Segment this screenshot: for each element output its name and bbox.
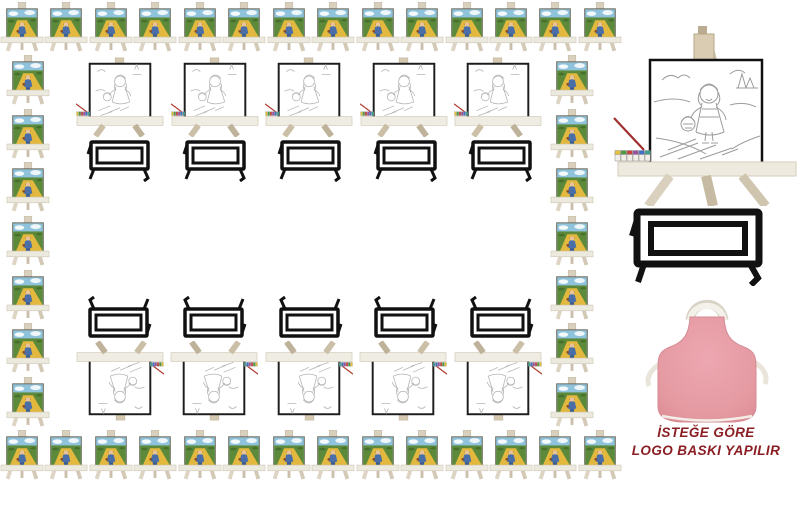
painted-canvas-icon xyxy=(585,9,616,39)
painted-canvas-icon xyxy=(13,276,44,306)
mini-canvas-easel xyxy=(222,430,266,480)
product-collage: İSTEĞE GÖRE LOGO BASKI YAPILIR xyxy=(0,0,800,509)
sketch-canvas-easel xyxy=(171,341,259,421)
easel-tray xyxy=(551,358,593,364)
mini-canvas-easel xyxy=(89,430,133,480)
table-outline-icon xyxy=(180,138,250,182)
sketch-canvas-easel xyxy=(265,341,353,421)
painted-canvas-icon xyxy=(7,437,38,467)
painted-canvas-icon xyxy=(13,169,44,199)
coloring-canvas-icon xyxy=(279,64,340,121)
easel-tray xyxy=(312,465,354,471)
mini-canvas-easel xyxy=(6,377,50,427)
paint-pots-icon xyxy=(528,362,542,374)
paint-brush-icon xyxy=(76,104,88,113)
coloring-canvas-icon xyxy=(468,358,529,415)
easel-left-leg xyxy=(379,125,387,136)
easel-tray xyxy=(455,117,541,126)
sketch-canvas-easel xyxy=(171,57,259,137)
paint-brush-icon xyxy=(171,104,183,113)
table-outline-icon xyxy=(466,138,536,182)
easel-left-leg xyxy=(137,342,145,353)
border-col-right xyxy=(550,55,598,427)
easel-tray xyxy=(179,37,221,43)
paint-pots-icon xyxy=(454,104,468,116)
easel-left-leg xyxy=(474,125,482,136)
easel-tray xyxy=(551,90,593,96)
painted-canvas-icon xyxy=(96,437,127,467)
table-outline-icon xyxy=(275,138,345,182)
easel-right-leg xyxy=(229,125,237,136)
easel-tray xyxy=(618,162,796,176)
coloring-canvas-icon xyxy=(90,64,151,121)
painted-canvas-icon xyxy=(540,437,571,467)
table-outline-icon xyxy=(466,296,536,340)
easel-tray xyxy=(534,37,576,43)
mini-canvas-easel xyxy=(445,2,489,52)
easel-tray xyxy=(7,251,49,257)
painted-canvas-icon xyxy=(13,384,44,414)
easel-right-leg xyxy=(135,125,143,136)
mini-canvas-easel xyxy=(533,430,577,480)
mini-canvas-easel xyxy=(222,2,266,52)
caption-line1: İSTEĞE GÖRE xyxy=(606,424,800,442)
easel-tray xyxy=(268,465,310,471)
painted-canvas-icon xyxy=(362,437,393,467)
painted-canvas-icon xyxy=(13,115,44,145)
mini-canvas-easel xyxy=(267,2,311,52)
painted-canvas-icon xyxy=(318,9,349,39)
painted-canvas-icon xyxy=(229,9,260,39)
easel-tray xyxy=(360,117,446,126)
sketch-canvas-easel xyxy=(360,341,448,421)
coloring-canvas-icon xyxy=(184,358,245,415)
mini-canvas-easel xyxy=(178,430,222,480)
border-col-left xyxy=(6,55,54,427)
sketch-canvas-easel xyxy=(454,341,542,421)
paint-brush-icon xyxy=(265,104,277,113)
painted-canvas-icon xyxy=(362,9,393,39)
easel-tray xyxy=(551,412,593,418)
table-outline-icon xyxy=(371,138,441,182)
border-row-bottom xyxy=(0,430,622,482)
mini-canvas-easel xyxy=(550,55,594,105)
mini-canvas-easel xyxy=(133,430,177,480)
painted-canvas-icon xyxy=(229,437,260,467)
painted-canvas-icon xyxy=(51,437,82,467)
painted-canvas-icon xyxy=(557,384,588,414)
mini-canvas-easel xyxy=(6,162,50,212)
painted-canvas-icon xyxy=(557,62,588,92)
easel-tray xyxy=(77,353,163,362)
apron xyxy=(642,290,772,428)
easel-tray xyxy=(266,117,352,126)
easel-right-leg xyxy=(513,125,521,136)
caption: İSTEĞE GÖRE LOGO BASKI YAPILIR xyxy=(606,424,800,459)
mini-canvas-easel xyxy=(400,430,444,480)
mini-canvas-easel xyxy=(550,270,594,320)
easel-tray xyxy=(551,197,593,203)
painted-canvas-icon xyxy=(140,437,171,467)
paint-brush-icon xyxy=(247,365,259,374)
easel-tray xyxy=(401,37,443,43)
easel-tray xyxy=(551,305,593,311)
mini-canvas-easel xyxy=(6,216,50,266)
paint-brush-icon xyxy=(360,104,372,113)
large-easel-icon xyxy=(612,8,798,206)
painted-canvas-icon xyxy=(273,9,304,39)
easel-tray xyxy=(534,465,576,471)
mini-canvas-easel xyxy=(6,323,50,373)
mini-canvas-easel xyxy=(550,162,594,212)
painted-canvas-icon xyxy=(451,9,482,39)
mini-canvas-easel xyxy=(489,2,533,52)
coloring-canvas-icon xyxy=(373,64,434,121)
mini-canvas-easel xyxy=(0,430,44,480)
easel-left-leg xyxy=(648,176,670,206)
easel-left-leg xyxy=(96,125,104,136)
paint-pots-icon xyxy=(150,362,164,374)
easel-tray xyxy=(7,412,49,418)
painted-canvas-icon xyxy=(496,9,527,39)
easel-tray xyxy=(7,90,49,96)
easel-right-leg xyxy=(324,125,332,136)
caption-line2: LOGO BASKI YAPILIR xyxy=(606,442,800,460)
easel-tray xyxy=(7,358,49,364)
mini-canvas-easel xyxy=(89,2,133,52)
easel-back-leg xyxy=(706,176,713,206)
easel-right-leg xyxy=(418,125,426,136)
paint-brush-icon xyxy=(341,365,353,374)
painted-canvas-icon xyxy=(557,223,588,253)
easel-tray xyxy=(360,353,446,362)
mini-canvas-easel xyxy=(550,216,594,266)
easel-right-leg xyxy=(98,342,106,353)
easel-tray xyxy=(445,37,487,43)
mini-canvas-easel xyxy=(133,2,177,52)
mini-canvas-easel xyxy=(178,2,222,52)
mini-canvas-easel xyxy=(445,430,489,480)
featured-table-icon xyxy=(628,206,768,286)
paint-pots-icon xyxy=(434,362,448,374)
sketch-canvas-easel xyxy=(265,57,353,137)
easel-tray xyxy=(90,465,132,471)
paint-brush-icon xyxy=(530,365,542,374)
sketch-canvas-easel xyxy=(76,57,164,137)
painted-canvas-icon xyxy=(51,9,82,39)
painted-canvas-icon xyxy=(185,9,216,39)
paint-pots-icon xyxy=(76,104,90,116)
easel-right-leg xyxy=(742,176,766,206)
mini-canvas-easel xyxy=(311,2,355,52)
paint-brush-icon xyxy=(454,104,466,113)
easel-left-leg xyxy=(515,342,523,353)
easel-left-leg xyxy=(420,342,428,353)
painted-canvas-icon xyxy=(540,9,571,39)
paint-pots-icon xyxy=(171,104,185,116)
mini-canvas-easel xyxy=(550,323,594,373)
easel-right-leg xyxy=(192,342,200,353)
paint-brush-icon xyxy=(436,365,448,374)
easel-tray xyxy=(579,465,621,471)
table-outline-icon xyxy=(84,138,154,182)
easel-tray xyxy=(7,305,49,311)
painted-canvas-icon xyxy=(557,115,588,145)
mini-canvas-easel xyxy=(356,2,400,52)
easel-tray xyxy=(312,37,354,43)
apron-body xyxy=(658,317,756,422)
easel-tray xyxy=(45,37,87,43)
sketch-canvas-easel xyxy=(454,57,542,137)
painted-canvas-icon xyxy=(496,437,527,467)
easel-tray xyxy=(455,353,541,362)
paint-pots-icon xyxy=(339,362,353,374)
painted-canvas-icon xyxy=(557,276,588,306)
mini-canvas-easel xyxy=(6,109,50,159)
sketch-easel-row-top xyxy=(76,57,542,139)
paint-pots-icon xyxy=(265,104,279,116)
easel-right-leg xyxy=(381,342,389,353)
painted-canvas-icon xyxy=(273,437,304,467)
mini-canvas-easel xyxy=(6,55,50,105)
mini-canvas-easel xyxy=(44,430,88,480)
easel-tray xyxy=(1,37,43,43)
mini-canvas-easel xyxy=(44,2,88,52)
easel-tray xyxy=(77,117,163,126)
easel-tray xyxy=(45,465,87,471)
paint-brush-icon xyxy=(614,118,644,150)
easel-tray xyxy=(7,144,49,150)
easel-tray xyxy=(171,117,257,126)
easel-tray xyxy=(179,465,221,471)
table-outline-icon xyxy=(275,296,345,340)
mini-canvas-easel xyxy=(356,430,400,480)
table-row-top xyxy=(84,138,536,182)
table-outline-icon xyxy=(371,296,441,340)
painted-canvas-icon xyxy=(13,62,44,92)
easel-tray xyxy=(357,37,399,43)
mini-canvas-easel xyxy=(311,430,355,480)
mini-canvas-easel xyxy=(533,2,577,52)
easel-tray xyxy=(357,465,399,471)
mini-canvas-easel xyxy=(400,2,444,52)
easel-tray xyxy=(7,197,49,203)
painted-canvas-icon xyxy=(13,330,44,360)
painted-canvas-icon xyxy=(7,9,38,39)
table-outline-icon xyxy=(180,296,250,340)
easel-left-leg xyxy=(190,125,198,136)
mini-canvas-easel xyxy=(550,377,594,427)
painted-canvas-icon xyxy=(13,223,44,253)
easel-tray xyxy=(490,465,532,471)
easel-tray xyxy=(223,465,265,471)
table-outline-icon xyxy=(628,206,768,286)
painted-canvas-icon xyxy=(557,330,588,360)
painted-canvas-icon xyxy=(140,9,171,39)
table-outline-icon xyxy=(84,296,154,340)
mini-canvas-easel xyxy=(6,270,50,320)
coloring-canvas-icon xyxy=(373,358,434,415)
paint-pots-icon xyxy=(614,118,650,161)
easel-left-leg xyxy=(231,342,239,353)
easel-tray xyxy=(445,465,487,471)
easel-tray xyxy=(171,353,257,362)
easel-tray xyxy=(134,465,176,471)
coloring-canvas-icon xyxy=(90,358,151,415)
paint-pots-icon xyxy=(245,362,259,374)
easel-tray xyxy=(134,37,176,43)
easel-tray xyxy=(490,37,532,43)
easel-right-leg xyxy=(287,342,295,353)
mini-canvas-easel xyxy=(489,430,533,480)
sketch-canvas-easel xyxy=(76,341,164,421)
easel-tray xyxy=(401,465,443,471)
featured-easel xyxy=(612,8,798,206)
easel-tray xyxy=(90,37,132,43)
easel-tray xyxy=(1,465,43,471)
easel-right-leg xyxy=(476,342,484,353)
painted-canvas-icon xyxy=(451,437,482,467)
border-row-top xyxy=(0,2,622,54)
mini-canvas-easel xyxy=(267,430,311,480)
easel-left-leg xyxy=(326,342,334,353)
painted-canvas-icon xyxy=(557,169,588,199)
easel-tray xyxy=(223,37,265,43)
painted-canvas-icon xyxy=(407,9,438,39)
easel-left-leg xyxy=(285,125,293,136)
easel-tray xyxy=(551,251,593,257)
painted-canvas-icon xyxy=(185,437,216,467)
paint-brush-icon xyxy=(152,365,164,374)
featured-coloring-canvas xyxy=(650,60,762,163)
sketch-easel-row-bottom xyxy=(76,339,542,421)
mini-canvas-easel xyxy=(0,2,44,52)
sketch-canvas-easel xyxy=(360,57,448,137)
easel-tray xyxy=(551,144,593,150)
mini-canvas-easel xyxy=(550,109,594,159)
pink-apron-icon xyxy=(642,290,772,430)
coloring-canvas-icon xyxy=(184,64,245,121)
easel-tray xyxy=(266,353,352,362)
easel-tray xyxy=(268,37,310,43)
coloring-canvas-icon xyxy=(279,358,340,415)
coloring-canvas-icon xyxy=(468,64,529,121)
table-row-bottom xyxy=(84,296,536,340)
painted-canvas-icon xyxy=(96,9,127,39)
painted-canvas-icon xyxy=(407,437,438,467)
paint-pots-icon xyxy=(360,104,374,116)
painted-canvas-icon xyxy=(318,437,349,467)
